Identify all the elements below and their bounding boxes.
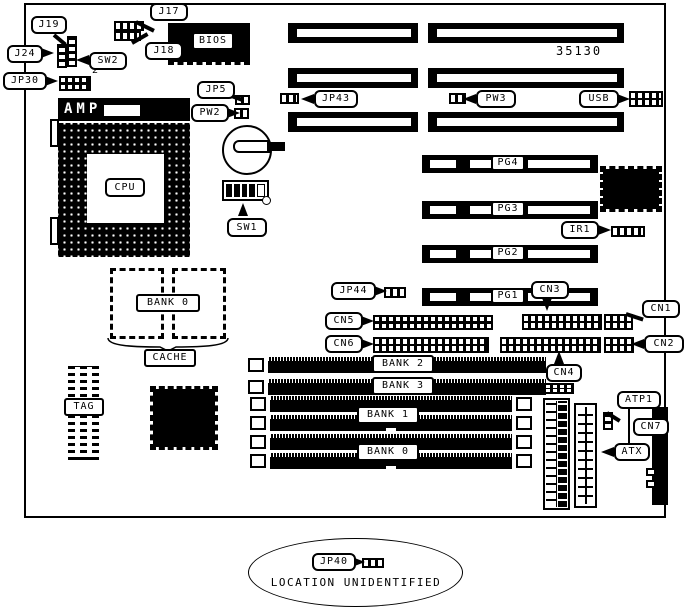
atp1-leader-line xyxy=(628,409,630,445)
callout-pw3: PW3 xyxy=(476,90,516,108)
cn5-header xyxy=(373,315,493,330)
callout-jp43-pointer xyxy=(301,94,314,104)
at-power-right-column xyxy=(558,401,568,507)
callout-cn2: CN2 xyxy=(644,335,684,353)
cn4-aux-header xyxy=(544,383,574,394)
pg3-slot: PG3 xyxy=(422,201,598,219)
callout-j18: J18 xyxy=(145,42,183,60)
cn3-header xyxy=(522,314,602,330)
callout-sw2: SW2 xyxy=(89,52,127,70)
callout-jp44: JP44 xyxy=(331,282,376,300)
tag-label: TAG xyxy=(64,398,104,416)
pg2-label: PG2 xyxy=(491,245,525,261)
cache-bank-label: BANK 0 xyxy=(136,294,200,312)
isa-slot-2-right xyxy=(428,68,624,88)
cn4-header xyxy=(500,337,601,353)
callout-cn3: CN3 xyxy=(531,281,569,299)
keyboard-connector-notch-b xyxy=(646,480,656,488)
cache-label: CACHE xyxy=(144,349,196,367)
pg1-label: PG1 xyxy=(491,288,525,304)
keyboard-connector-notch-a xyxy=(646,468,656,476)
isa-slot-1-left xyxy=(288,23,418,43)
sw1-switch-4 xyxy=(249,184,255,197)
jp30-connector xyxy=(59,76,91,91)
j24-jumper-block xyxy=(57,44,67,68)
ir1-header xyxy=(611,226,645,237)
pg4-slot: PG4 xyxy=(422,155,598,173)
isa-slot-2-left xyxy=(288,68,418,88)
cpu-socket-tab-lower xyxy=(50,217,59,245)
callout-pw3-pointer xyxy=(463,94,476,104)
usb-header xyxy=(629,91,663,107)
isa-slot-3-left xyxy=(288,112,418,132)
pg4-label: PG4 xyxy=(491,155,525,171)
callout-atx-pointer xyxy=(601,447,614,457)
callout-j17: J17 xyxy=(150,3,188,21)
isa-slot-3-right xyxy=(428,112,624,132)
callout-cn2-pointer xyxy=(631,339,644,349)
callout-cn6: CN6 xyxy=(325,335,363,353)
callout-usb: USB xyxy=(579,90,619,108)
callout-cn7: CN7 xyxy=(633,418,669,436)
amp-bar-window xyxy=(104,105,140,116)
unidentified-ellipse xyxy=(248,538,463,607)
callout-sw1-pointer xyxy=(238,203,248,216)
motherboard-diagram: BIOS J17 J18 J19 J24 SW2 2 JP30 35130 JP… xyxy=(0,0,687,611)
battery-clip xyxy=(233,140,270,153)
at-power-connector xyxy=(543,398,570,510)
bank3-label: BANK 3 xyxy=(372,377,434,395)
sw1-switch-2 xyxy=(234,184,240,197)
callout-pw2: PW2 xyxy=(191,104,229,122)
sw1-switch-1 xyxy=(226,184,232,197)
cn2-header xyxy=(604,337,634,353)
callout-j19: J19 xyxy=(31,16,67,34)
chipset-qfp xyxy=(600,166,662,212)
part-number: 35130 xyxy=(556,44,602,58)
battery-clip-tip xyxy=(267,142,285,151)
atx-power-connector xyxy=(574,403,597,508)
pg1-slot: PG1 xyxy=(422,288,598,306)
at-power-left-column xyxy=(546,401,557,507)
controller-qfp xyxy=(150,386,218,450)
callout-jp40: JP40 xyxy=(312,553,356,571)
sw1-switch-3 xyxy=(242,184,248,197)
callout-cn4: CN4 xyxy=(546,364,582,382)
callout-jp5: JP5 xyxy=(197,81,235,99)
bank1-label: BANK 1 xyxy=(357,406,419,424)
cpu-label: CPU xyxy=(105,178,145,197)
callout-cn5: CN5 xyxy=(325,312,363,330)
callout-ir1: IR1 xyxy=(561,221,599,239)
callout-jp43: JP43 xyxy=(314,90,358,108)
bank0-label: BANK 0 xyxy=(357,443,419,461)
callout-atx: ATX xyxy=(614,443,650,461)
cpu-socket-tab-upper xyxy=(50,119,59,147)
callout-j24: J24 xyxy=(7,45,43,63)
callout-ir1-pointer xyxy=(598,225,611,235)
callout-sw2-pointer xyxy=(76,55,89,65)
bank2-label: BANK 2 xyxy=(372,355,434,373)
isa-slot-1-right xyxy=(428,23,624,43)
jp44-jumper xyxy=(384,287,406,298)
callout-atp1: ATP1 xyxy=(617,391,661,409)
cn6-header xyxy=(373,337,489,353)
jp40-jumper xyxy=(362,558,384,568)
callout-cn3-pointer xyxy=(542,298,552,311)
unidentified-note: LOCATION UNIDENTIFIED xyxy=(256,576,456,589)
sw1-mount-hole xyxy=(262,196,271,205)
pg3-label: PG3 xyxy=(491,201,525,217)
jp43-jumper xyxy=(280,93,299,104)
sw1-switch-5 xyxy=(257,184,265,197)
pg2-slot: PG2 xyxy=(422,245,598,263)
bios-label: BIOS xyxy=(193,33,233,49)
callout-cn4-pointer xyxy=(554,351,564,364)
callout-jp30: JP30 xyxy=(3,72,47,90)
callout-sw1: SW1 xyxy=(227,218,267,237)
callout-cn1: CN1 xyxy=(642,300,680,318)
amp-brand-label: AMP xyxy=(64,101,101,117)
